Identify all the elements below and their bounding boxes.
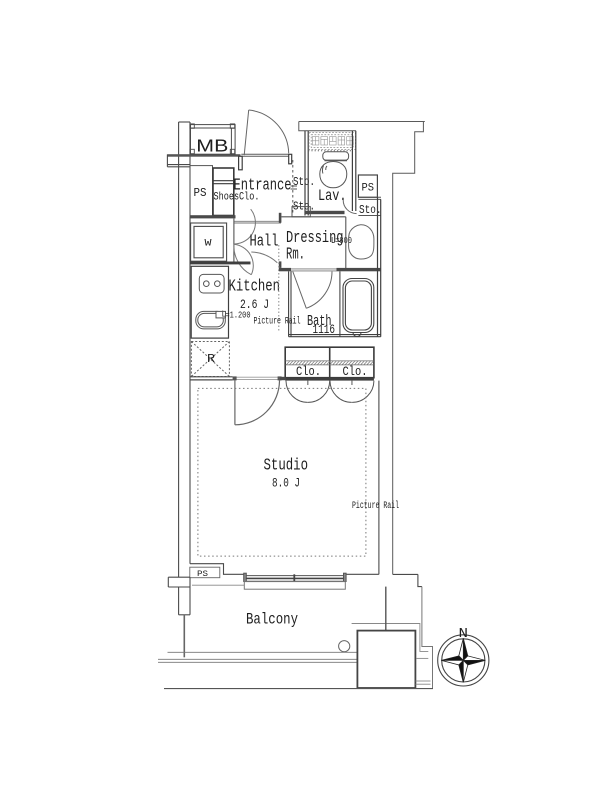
svg-text:Studio: Studio xyxy=(264,456,309,475)
svg-text:Sto.: Sto. xyxy=(359,203,382,217)
svg-text:Entrance: Entrance xyxy=(234,176,292,195)
svg-text:N: N xyxy=(459,626,469,642)
svg-text:Rm.: Rm. xyxy=(286,245,305,264)
svg-text:Picture Rail: Picture Rail xyxy=(352,500,399,512)
svg-text:Balcony: Balcony xyxy=(246,611,298,629)
svg-text:MB: MB xyxy=(196,135,228,155)
svg-text:PS: PS xyxy=(197,569,208,579)
svg-text:Picture Rail: Picture Rail xyxy=(254,316,301,328)
svg-text:Lav.: Lav. xyxy=(318,187,347,205)
svg-text:Sto.: Sto. xyxy=(293,176,315,189)
svg-text:Clo.: Clo. xyxy=(343,365,368,379)
svg-text:W: W xyxy=(205,239,212,250)
svg-text:PS: PS xyxy=(194,187,207,200)
svg-text:PS: PS xyxy=(362,183,375,195)
svg-text:R: R xyxy=(207,352,215,366)
svg-text:Kitchen: Kitchen xyxy=(229,277,281,296)
svg-text:8.0 J: 8.0 J xyxy=(272,477,300,491)
svg-text:=1.200: =1.200 xyxy=(226,310,251,321)
svg-text:Hall: Hall xyxy=(250,232,279,251)
svg-text:Clo.: Clo. xyxy=(296,365,321,379)
